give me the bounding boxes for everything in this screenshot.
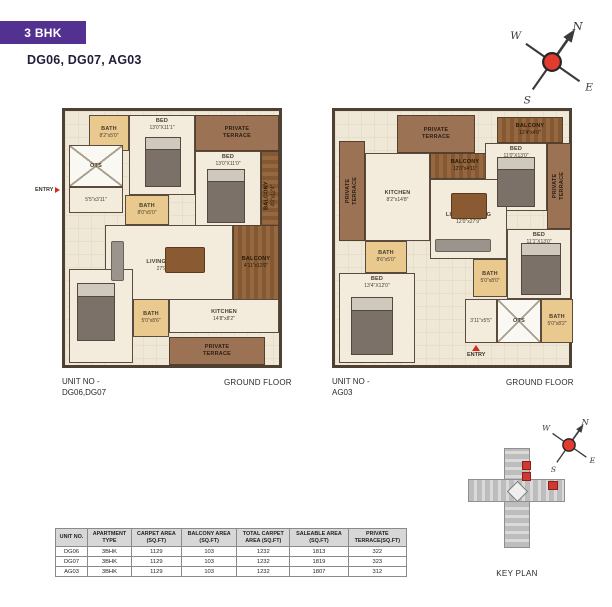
cell: 1232 (237, 557, 290, 567)
col-saleable-area: SALEABLE AREA (SQ.FT) (290, 529, 348, 547)
entry-arrow-icon (472, 345, 480, 351)
area-table: UNIT NO. APARTMENT TYPE CARPET AREA (SQ.… (55, 528, 407, 577)
cell: 312 (348, 567, 406, 577)
compass-e-label: E (589, 456, 596, 465)
cell: DG06 (56, 547, 88, 557)
sofa (435, 239, 491, 252)
bed-furniture (351, 297, 393, 355)
table-row: DG07 3BHK 1129 103 1232 1819 323 (56, 557, 407, 567)
cell: DG07 (56, 557, 88, 567)
room-balcony: BALCONY4'11"x12'0" (233, 225, 279, 301)
keyplan-highlight-unit (548, 481, 558, 490)
col-unit-no: UNIT NO. (56, 529, 88, 547)
floor-caption-right: GROUND FLOOR (506, 378, 574, 387)
room-private-terrace: PRIVATE TERRACE (547, 143, 571, 229)
col-carpet-area: CARPET AREA (SQ.FT) (131, 529, 181, 547)
floor-caption-left: GROUND FLOOR (224, 378, 292, 387)
compass-e-label: E (584, 80, 593, 93)
bhk-type-badge: 3 BHK (0, 21, 86, 44)
bed-furniture (145, 137, 181, 187)
room-bath: BATH8'0"x5'0" (125, 195, 169, 225)
cell: 1807 (290, 567, 348, 577)
cell: 1129 (131, 557, 181, 567)
keyplan-highlight-unit (522, 461, 531, 470)
compass-n-label: N (581, 417, 590, 427)
compass-s-label: S (524, 94, 531, 107)
room-foyer: 3'11"x5'5" (465, 299, 497, 343)
unit-no-caption-left: UNIT NO - DG06,DG07 (62, 376, 106, 398)
room-private-terrace: PRIVATE TERRACE (195, 115, 279, 151)
unit-no-caption-right: UNIT NO - AG03 (332, 376, 370, 398)
unit-no-label: UNIT NO - (62, 376, 106, 387)
table-row: AG03 3BHK 1129 103 1232 1807 312 (56, 567, 407, 577)
dining-table (451, 193, 487, 219)
room-balcony: BALCONY12'4"x4'0" (497, 117, 563, 143)
cell: 103 (181, 557, 236, 567)
entry-label: ENTRY (35, 187, 53, 193)
cell: 103 (181, 547, 236, 557)
unit-numbers-title: DG06, DG07, AG03 (27, 53, 142, 67)
cell: 1232 (237, 547, 290, 557)
floorplan-dg06-dg07: BATH8'2"x5'0" BED13'0"X11'1" PRIVATE TER… (62, 108, 282, 368)
keyplan-label: KEY PLAN (462, 569, 572, 578)
unit-no-value: DG06,DG07 (62, 387, 106, 398)
entry-arrow-icon (55, 187, 60, 193)
cell: 322 (348, 547, 406, 557)
room-bath: BATH8'6"x5'0" (365, 241, 407, 273)
room-private-terrace: PRIVATE TERRACE (397, 115, 475, 153)
cell: 3BHK (88, 557, 132, 567)
room-bath: BATH5'0"x8'0" (473, 259, 507, 297)
cell: 1129 (131, 567, 181, 577)
col-balcony-area: BALCONY AREA (SQ.FT) (181, 529, 236, 547)
key-plan (468, 448, 565, 548)
room-ots: OTS (497, 299, 541, 343)
unit-no-value: AG03 (332, 387, 370, 398)
cell: 1813 (290, 547, 348, 557)
room-kitchen: KITCHEN14'8"x8'2" (169, 299, 279, 333)
cell: 3BHK (88, 567, 132, 577)
bed-furniture (77, 283, 115, 341)
col-apartment-type: APARTMENT TYPE (88, 529, 132, 547)
bed-furniture (207, 169, 245, 223)
keyplan-highlight-unit (522, 472, 531, 481)
cell: 1232 (237, 567, 290, 577)
cell: 1129 (131, 547, 181, 557)
compass-n-label: N (572, 19, 584, 33)
room-private-terrace: PRIVATE TERRACE (339, 141, 365, 241)
cell: 103 (181, 567, 236, 577)
cell: 1819 (290, 557, 348, 567)
dining-table (165, 247, 205, 273)
entry-marker: ENTRY (467, 345, 485, 358)
table-row: DG06 3BHK 1129 103 1232 1813 322 (56, 547, 407, 557)
room-bath: BATH5'0"x8'6" (133, 299, 169, 337)
table-header-row: UNIT NO. APARTMENT TYPE CARPET AREA (SQ.… (56, 529, 407, 547)
room-ots: OTS (69, 145, 123, 187)
floorplan-ag03: PRIVATE TERRACE PRIVATE TERRACE KITCHEN8… (332, 108, 572, 368)
compass-icon: N E S W (502, 16, 602, 108)
col-private-terrace: PRIVATE TERRACE(SQ.FT) (348, 529, 406, 547)
compass-w-label: W (510, 29, 522, 42)
unit-no-label: UNIT NO - (332, 376, 370, 387)
entry-label: ENTRY (467, 352, 485, 358)
cell: 3BHK (88, 547, 132, 557)
room-foyer: 5'5"x3'11" (69, 187, 123, 213)
cell: 323 (348, 557, 406, 567)
room-bath: BATH5'0"x8'2" (541, 299, 573, 343)
compass-w-label: W (542, 424, 551, 433)
entry-marker: ENTRY (35, 187, 60, 193)
cell: AG03 (56, 567, 88, 577)
room-kitchen: KITCHEN8'2"x14'8" (365, 153, 430, 241)
bed-furniture (497, 157, 535, 207)
sofa (111, 241, 124, 281)
room-private-terrace: PRIVATE TERRACE (169, 337, 265, 365)
bed-furniture (521, 243, 561, 295)
col-total-carpet-area: TOTAL CARPET AREA (SQ.FT) (237, 529, 290, 547)
